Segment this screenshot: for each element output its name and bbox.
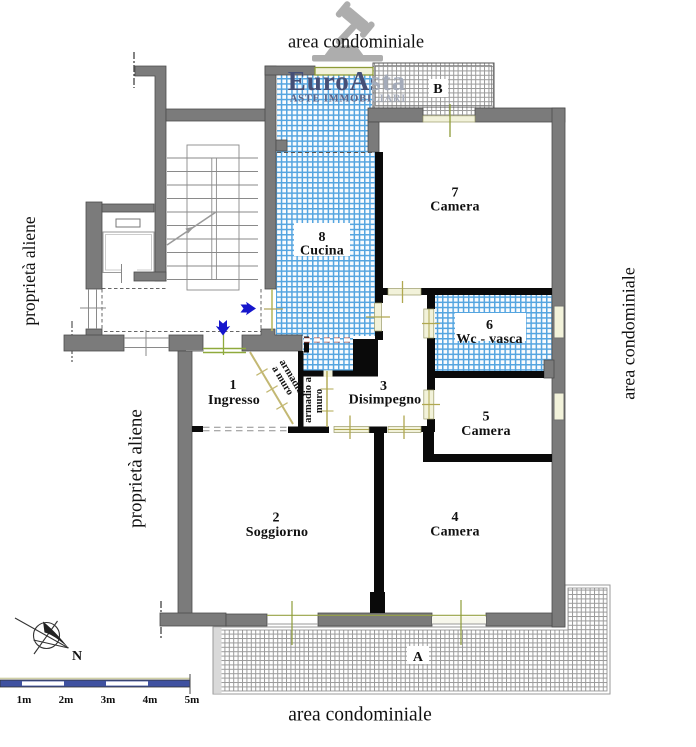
svg-text:area condominiale: area condominiale — [288, 33, 424, 53]
svg-text:area condominiale: area condominiale — [619, 267, 639, 399]
svg-text:Camera: Camera — [430, 200, 479, 215]
svg-text:7: 7 — [452, 186, 459, 201]
svg-text:Camera: Camera — [461, 424, 510, 439]
svg-text:Wc - vasca: Wc - vasca — [456, 332, 523, 347]
svg-text:Soggiorno: Soggiorno — [246, 525, 308, 540]
svg-text:4: 4 — [452, 510, 459, 525]
svg-text:proprietà aliene: proprietà aliene — [126, 409, 147, 528]
svg-text:armadio a: armadio a — [303, 376, 314, 423]
svg-text:5m: 5m — [185, 694, 200, 706]
svg-text:B: B — [433, 82, 443, 97]
svg-text:1: 1 — [230, 378, 237, 393]
svg-text:muro: muro — [314, 389, 325, 413]
svg-text:area condominiale: area condominiale — [288, 705, 431, 726]
svg-text:2m: 2m — [59, 694, 74, 706]
svg-text:1m: 1m — [17, 694, 32, 706]
svg-text:proprietà aliene: proprietà aliene — [19, 216, 39, 326]
svg-text:Ingresso: Ingresso — [208, 393, 260, 408]
svg-text:Camera: Camera — [430, 525, 479, 540]
svg-text:2: 2 — [273, 511, 280, 526]
svg-text:6: 6 — [486, 318, 493, 333]
svg-text:Cucina: Cucina — [300, 244, 344, 259]
svg-text:5: 5 — [483, 410, 490, 425]
svg-text:A: A — [413, 650, 424, 665]
svg-text:4m: 4m — [143, 694, 158, 706]
svg-text:N: N — [72, 649, 82, 664]
svg-text:Disimpegno: Disimpegno — [349, 393, 422, 408]
svg-text:3m: 3m — [101, 694, 116, 706]
